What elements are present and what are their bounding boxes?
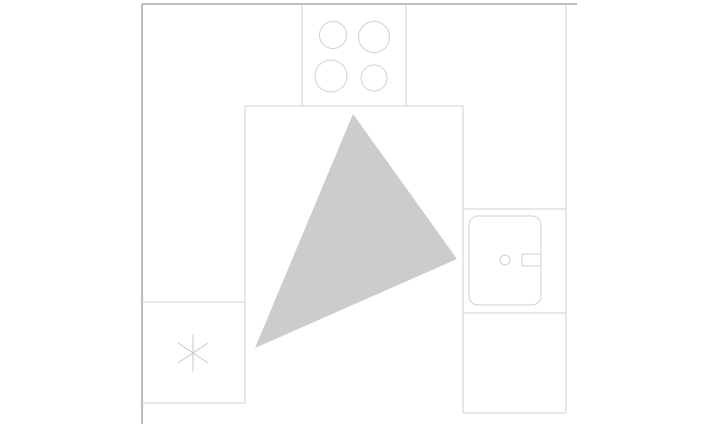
burner-top-right (359, 22, 390, 53)
sink-drain (500, 255, 510, 265)
burner-bottom-right (361, 65, 387, 91)
burner-top-left (320, 22, 347, 49)
sink-faucet (522, 254, 541, 266)
sink-basin (469, 216, 541, 305)
work-triangle (255, 114, 457, 348)
floor-plan-svg (0, 0, 707, 424)
kitchen-floor-plan (0, 0, 707, 424)
burner-bottom-left (315, 60, 347, 92)
